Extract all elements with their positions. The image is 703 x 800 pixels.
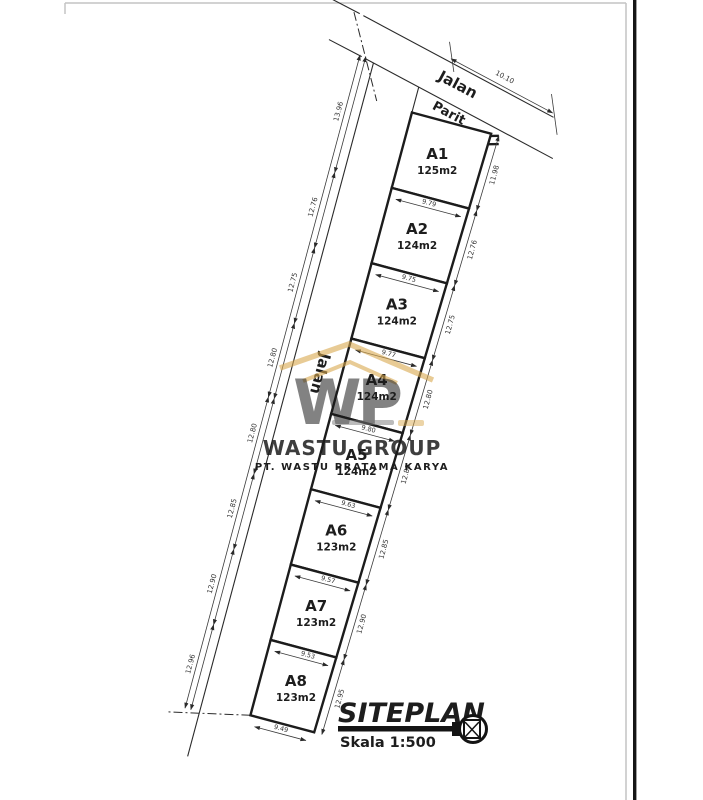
left-chain-a-seg-4 <box>274 323 294 398</box>
left-chain-a-seg-8 <box>191 625 214 710</box>
siteplan-drawing: 10.10 Jalan Parit Jalan A1 <box>0 0 703 800</box>
watermark-monogram: WP <box>293 366 400 439</box>
plot-A2-id: A2 <box>406 220 428 238</box>
title-underline-bar <box>338 726 456 732</box>
right-chain-value-7: 12.90 <box>355 613 368 634</box>
right-chain-value-6: 12.85 <box>378 538 391 559</box>
right-edge-bar <box>633 0 636 800</box>
top-road-lower-edge-ext <box>327 40 364 57</box>
top-road-upper-edge-ext <box>325 0 362 14</box>
top-road-upper-edge <box>351 16 567 118</box>
right-chain-value-2: 12.76 <box>466 239 479 261</box>
plot-A3-id: A3 <box>386 296 408 314</box>
top-road-label: Jalan <box>434 66 480 102</box>
plot-A8-area: 123m2 <box>276 692 316 704</box>
top-road-dim-ext-right <box>542 94 567 135</box>
right-chain-value-4: 12.80 <box>422 389 435 410</box>
plot-A6-id: A6 <box>325 522 347 540</box>
plot-A1-id: A1 <box>426 145 448 163</box>
boundary-dashdot-bottom <box>168 695 250 733</box>
watermark-tagline-bar <box>332 420 394 425</box>
right-chain-value-1: 11.98 <box>488 164 501 185</box>
left-chain-a-seg-7 <box>214 549 234 624</box>
left-chain-a-seg-6 <box>234 474 254 549</box>
title-block: SITEPLAN Skala 1:500 <box>338 698 487 751</box>
plot-A7-id: A7 <box>305 597 327 615</box>
watermark-gold-mark <box>398 420 424 426</box>
left-chain-a-seg-3 <box>294 248 314 323</box>
watermark-company-subtitle: PT. WASTU PRATAMA KARYA <box>255 462 449 473</box>
siteplan-page: 10.10 Jalan Parit Jalan A1 <box>0 0 703 800</box>
plot-A2-area: 124m2 <box>397 240 437 252</box>
plot-A1-area: 125m2 <box>417 165 457 177</box>
left-chain-value-1: 13.96 <box>332 100 345 122</box>
left-chain-b-seg-2 <box>185 397 268 708</box>
left-chain-a-seg-2 <box>315 173 335 248</box>
plot-A3-area: 124m2 <box>377 316 417 328</box>
watermark-company-name: WASTU GROUP <box>263 436 442 460</box>
plot-A7-area: 123m2 <box>296 617 336 629</box>
plot-A8-id: A8 <box>285 672 307 690</box>
left-chain-value-2: 12.76 <box>307 196 320 218</box>
right-chain-value-3: 12.75 <box>444 314 457 335</box>
boundary-dashdot-top <box>333 12 397 101</box>
left-chain-value-8: 12.96 <box>184 653 197 675</box>
plot-A6-area: 123m2 <box>316 542 356 554</box>
scale-label: Skala 1:500 <box>340 735 436 751</box>
strip-left-edge-upper <box>412 87 419 112</box>
